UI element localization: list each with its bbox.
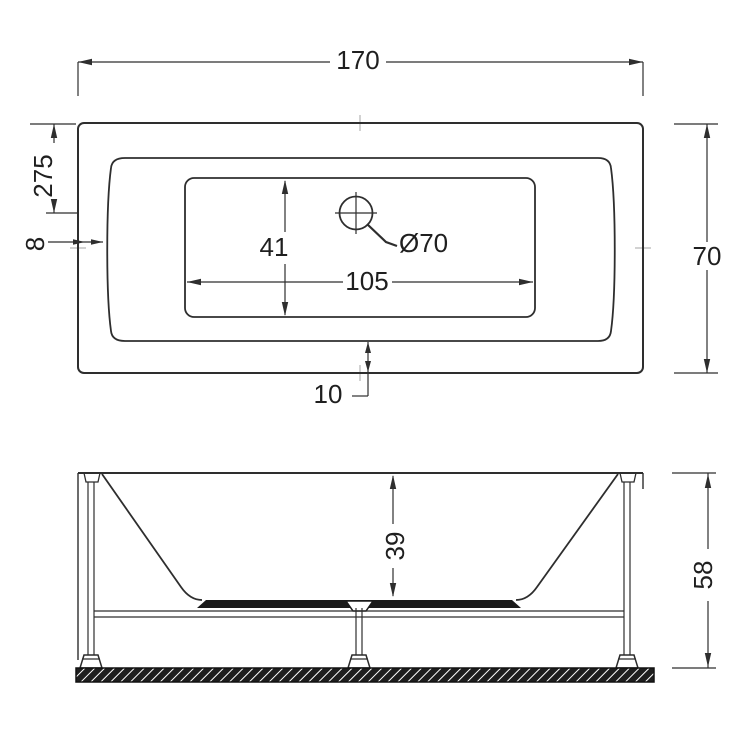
front-view: 39 58: [76, 473, 718, 682]
rim-notch-right: [620, 473, 636, 482]
dim-overall-width: 70: [674, 124, 721, 373]
bathtub-technical-drawing: Ø70 170 70: [0, 0, 750, 750]
dim-label-overall-width: 70: [693, 241, 722, 271]
center-strut: [356, 608, 362, 655]
drain-recess: [346, 601, 373, 611]
dim-label-overall-height: 58: [688, 561, 718, 590]
dim-label-rim-to-drain: 275: [28, 154, 58, 197]
rim-notch-left: [84, 473, 100, 482]
dim-label-overall-length: 170: [336, 45, 379, 75]
dim-rim-edge: 8: [20, 237, 103, 251]
dim-rim-bottom: 10: [314, 342, 371, 409]
frame-leg-left: [88, 482, 94, 655]
frame-leg-right: [624, 482, 630, 655]
foot-right: [616, 655, 638, 668]
tub-floor: [185, 178, 535, 317]
drawing-canvas: Ø70 170 70: [0, 0, 750, 750]
dim-label-basin-depth: 39: [380, 532, 410, 561]
dim-basin-length: 105: [187, 266, 533, 296]
dim-basin-width: 41: [260, 180, 289, 316]
dim-label-rim-bottom: 10: [314, 379, 343, 409]
frame-rail: [94, 611, 624, 617]
dim-label-rim-edge: 8: [20, 237, 50, 251]
dim-label-basin-length: 105: [345, 266, 388, 296]
dim-label-basin-width: 41: [260, 232, 289, 262]
dim-label-drain: Ø70: [399, 228, 448, 258]
dim-rim-to-drain: 275: [28, 124, 78, 213]
tub-inner-rim: [107, 158, 615, 341]
top-view: Ø70 170 70: [20, 45, 721, 409]
dim-overall-length: 170: [78, 45, 643, 96]
dim-overall-height: 58: [672, 473, 718, 668]
drain-leader-line: [367, 224, 397, 246]
ground-hatch: [76, 668, 654, 682]
foot-left: [80, 655, 102, 668]
tub-wall-left-slope: [102, 474, 202, 600]
drain-symbol: Ø70: [335, 192, 448, 258]
dim-basin-depth: 39: [380, 475, 410, 597]
foot-center: [348, 655, 370, 668]
tub-outer-rim: [78, 123, 643, 373]
tub-wall-right-slope: [516, 474, 618, 600]
